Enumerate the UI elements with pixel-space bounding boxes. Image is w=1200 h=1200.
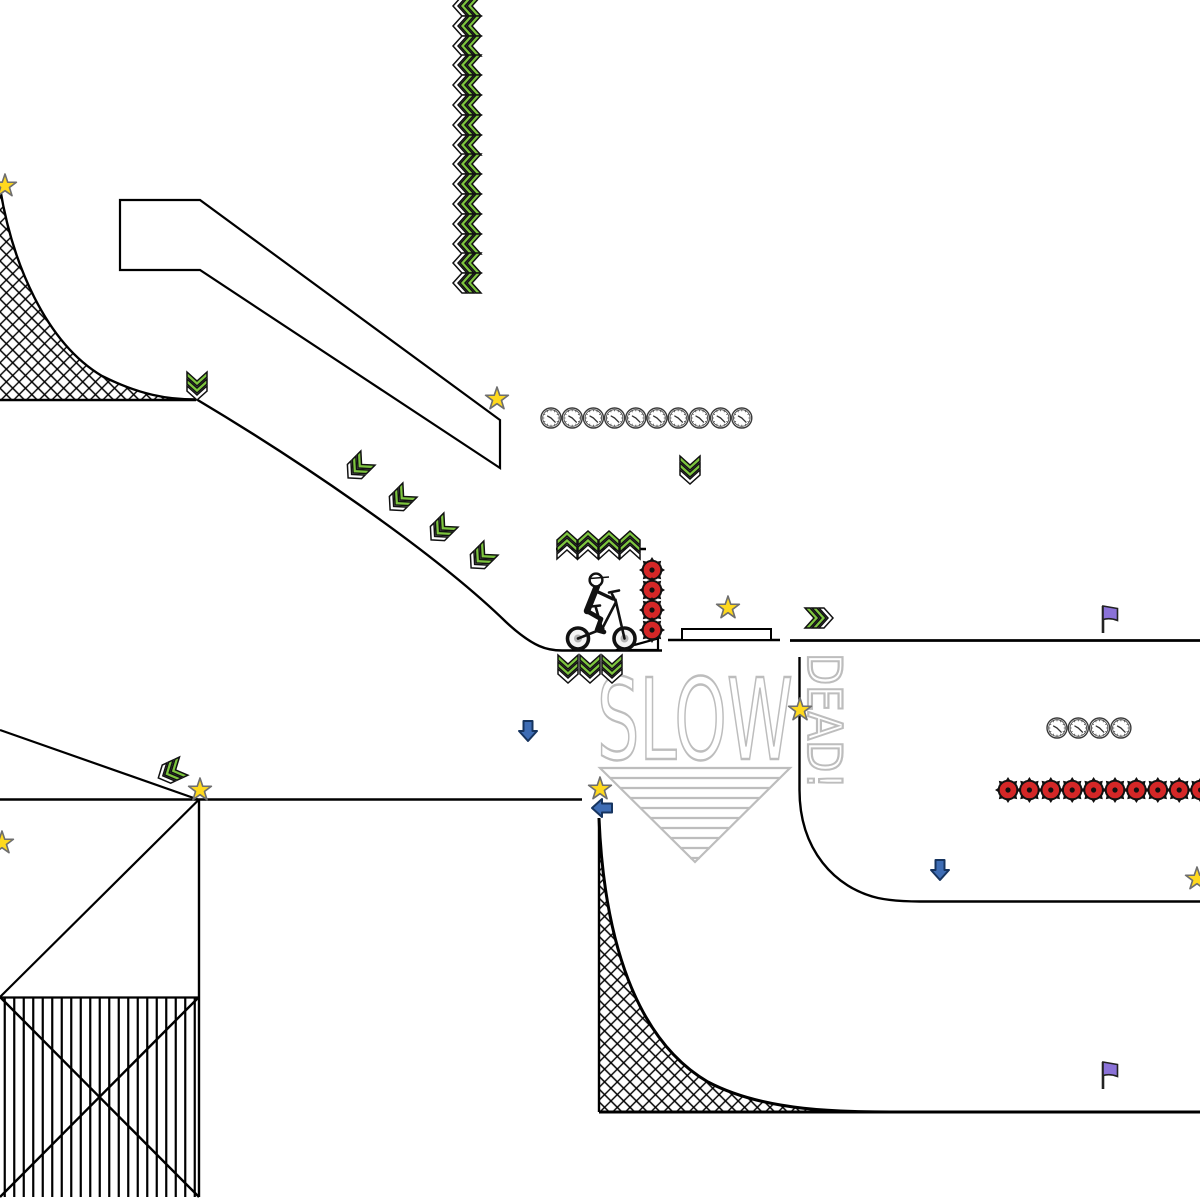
boost-chevron-icon bbox=[453, 253, 481, 273]
boost-chevron-icon bbox=[453, 0, 481, 16]
pit-wall bbox=[800, 657, 1200, 902]
boost-chevron-icon bbox=[341, 451, 375, 485]
watermark-slow-text: SLOW bbox=[597, 656, 793, 786]
tower-brace bbox=[0, 800, 199, 998]
boost-chevron-icon bbox=[805, 608, 833, 628]
stars-layer bbox=[0, 174, 1200, 889]
boost-chevron-icon bbox=[453, 154, 481, 174]
slide-beam bbox=[120, 200, 500, 468]
boost-chevron-icon bbox=[599, 531, 619, 559]
boost-chevron-icon bbox=[187, 372, 207, 400]
rider[interactable] bbox=[568, 574, 636, 649]
time-bonus-clock-icon bbox=[711, 408, 731, 428]
boost-chevron-icon bbox=[453, 75, 481, 95]
helmet-icon bbox=[590, 574, 603, 587]
time-bonus-clock-icon bbox=[541, 408, 561, 428]
boost-chevron-icon bbox=[453, 234, 481, 254]
boost-chevron-icon bbox=[453, 115, 481, 135]
boost-chevron-icon bbox=[154, 757, 188, 787]
platform-box bbox=[682, 629, 771, 640]
gravity-arrow-icon bbox=[592, 799, 612, 817]
time-bonus-clock-icon bbox=[732, 408, 752, 428]
time-bonus-clock-icon bbox=[626, 408, 646, 428]
time-bonus-clock-icon bbox=[562, 408, 582, 428]
boost-chevron-icon bbox=[558, 655, 578, 683]
checkpoint-flag-icon bbox=[1103, 606, 1118, 633]
boost-chevron-icon bbox=[453, 36, 481, 56]
time-bonus-clock-icon bbox=[668, 408, 688, 428]
rider-body-icon bbox=[587, 574, 613, 632]
boost-chevron-icon bbox=[453, 214, 481, 234]
spike-wheel-icon bbox=[1188, 777, 1200, 803]
boost-chevron-icon bbox=[453, 55, 481, 75]
boost-chevron-icon bbox=[620, 531, 640, 559]
star-icon bbox=[717, 596, 740, 618]
time-bonus-clock-icon bbox=[647, 408, 667, 428]
boost-chevron-icon bbox=[453, 16, 481, 36]
watermark-dead-text: DEAD! bbox=[796, 653, 851, 789]
time-bonus-clock-icon bbox=[689, 408, 709, 428]
time-bonus-clock-icon bbox=[583, 408, 603, 428]
boost-chevron-icon bbox=[424, 513, 458, 547]
boost-chevron-icon bbox=[453, 95, 481, 115]
boost-chevron-icon bbox=[453, 135, 481, 155]
time-bonus-clock-icon bbox=[1111, 718, 1131, 738]
boost-chevron-icon bbox=[464, 541, 498, 575]
scenery-layer: SLOW DEAD! bbox=[597, 653, 851, 862]
gravity-arrow-icon bbox=[519, 721, 537, 741]
spike-wheel-icon bbox=[639, 617, 665, 643]
boost-chevron-icon bbox=[453, 273, 481, 293]
boost-chevron-icon bbox=[453, 174, 481, 194]
boost-chevron-icon bbox=[453, 194, 481, 214]
time-bonus-clock-icon bbox=[605, 408, 625, 428]
boost-chevron-icon bbox=[557, 531, 577, 559]
time-bonus-clock-icon bbox=[1068, 718, 1088, 738]
quarterpipe-bottom-net bbox=[599, 818, 905, 1112]
star-icon bbox=[0, 174, 16, 196]
time-bonus-clock-icon bbox=[1090, 718, 1110, 738]
flags-layer bbox=[1103, 606, 1118, 1089]
time-bonus-clock-icon bbox=[1047, 718, 1067, 738]
boost-chevron-icon bbox=[383, 483, 417, 517]
star-icon bbox=[486, 387, 509, 409]
game-viewport[interactable]: SLOW DEAD! bbox=[0, 0, 1200, 1200]
boost-chevron-icon bbox=[680, 456, 700, 484]
gravity-arrow-icon bbox=[931, 860, 949, 880]
checkpoint-flag-icon bbox=[1103, 1062, 1118, 1089]
star-icon bbox=[1186, 867, 1200, 889]
boost-chevron-icon bbox=[578, 531, 598, 559]
star-icon bbox=[0, 831, 13, 853]
